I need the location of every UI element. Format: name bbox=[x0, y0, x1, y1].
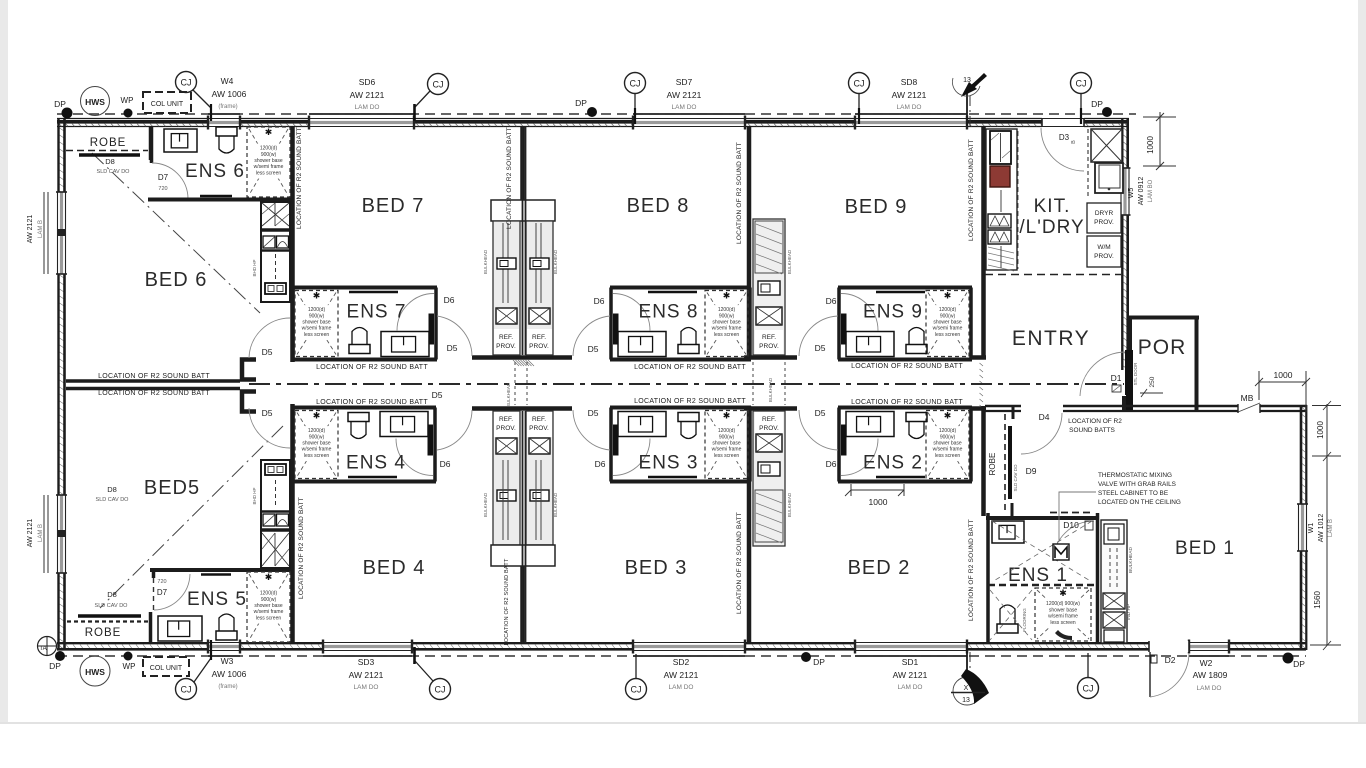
svg-text:250: 250 bbox=[1149, 376, 1156, 387]
svg-text:less screen: less screen bbox=[935, 332, 961, 338]
svg-text:REF.: REF. bbox=[499, 416, 513, 423]
svg-text:PROV.: PROV. bbox=[529, 425, 549, 432]
svg-text:D6: D6 bbox=[826, 459, 837, 469]
svg-text:shower base: shower base bbox=[254, 603, 283, 609]
svg-text:CJ: CJ bbox=[181, 685, 192, 695]
svg-text:D4: D4 bbox=[1039, 412, 1050, 422]
svg-text:SLD CAV DO: SLD CAV DO bbox=[1013, 464, 1018, 491]
svg-text:B: B bbox=[1071, 140, 1077, 144]
svg-text:D5: D5 bbox=[588, 408, 599, 418]
svg-text:PROV.: PROV. bbox=[759, 425, 779, 432]
svg-text:WP: WP bbox=[123, 662, 136, 671]
svg-text:SLD CAV DO: SLD CAV DO bbox=[95, 603, 129, 609]
svg-text:AW 2121: AW 2121 bbox=[27, 215, 34, 244]
svg-text:SD3: SD3 bbox=[358, 657, 375, 667]
svg-text:LOCATION OF R2 SOUND BATT: LOCATION OF R2 SOUND BATT bbox=[851, 363, 963, 370]
svg-text:D7: D7 bbox=[157, 588, 168, 597]
svg-text:MB: MB bbox=[1241, 393, 1254, 403]
svg-text:LAM DO: LAM DO bbox=[898, 684, 923, 691]
svg-text:LOCATION OF R2 SOUND BATT: LOCATION OF R2 SOUND BATT bbox=[968, 519, 975, 621]
svg-text:900(w): 900(w) bbox=[719, 313, 735, 319]
svg-text:less screen: less screen bbox=[714, 453, 740, 459]
svg-text:PROV.: PROV. bbox=[759, 343, 779, 350]
svg-text:REF.: REF. bbox=[499, 334, 513, 341]
svg-text:REF.: REF. bbox=[532, 416, 546, 423]
svg-text:ENS 8: ENS 8 bbox=[639, 302, 699, 323]
svg-text:shower base: shower base bbox=[712, 441, 741, 447]
svg-text:HWS: HWS bbox=[85, 97, 105, 107]
svg-text:WP: WP bbox=[121, 96, 134, 105]
svg-text:W3: W3 bbox=[221, 656, 234, 666]
svg-text:LOCATION OF R2 SOUND BATT: LOCATION OF R2 SOUND BATT bbox=[316, 399, 428, 406]
svg-text:✱: ✱ bbox=[313, 291, 321, 301]
svg-text:D8: D8 bbox=[105, 157, 115, 166]
svg-text:DP: DP bbox=[1091, 99, 1103, 109]
svg-text:w/semi frame: w/semi frame bbox=[302, 447, 332, 453]
svg-text:TA: TA bbox=[39, 646, 46, 652]
svg-text:AW 0912: AW 0912 bbox=[1138, 177, 1145, 206]
svg-text:BED5: BED5 bbox=[144, 477, 200, 499]
svg-text:ENS 2: ENS 2 bbox=[863, 453, 923, 474]
svg-text:LAM B: LAM B bbox=[1328, 519, 1334, 537]
svg-text:BED 1: BED 1 bbox=[1175, 538, 1235, 559]
svg-text:POR: POR bbox=[1138, 336, 1187, 359]
svg-text:KIT.: KIT. bbox=[1034, 196, 1071, 217]
svg-text:LAM B: LAM B bbox=[38, 220, 44, 238]
svg-text:less screen: less screen bbox=[256, 615, 282, 621]
svg-text:900(w): 900(w) bbox=[309, 313, 325, 319]
svg-text:✱: ✱ bbox=[944, 291, 952, 301]
svg-text:CJ: CJ bbox=[1083, 684, 1094, 694]
svg-text:BULKHEAD: BULKHEAD bbox=[553, 492, 558, 517]
svg-text:CJ: CJ bbox=[1076, 79, 1087, 89]
svg-text:W1: W1 bbox=[1308, 523, 1315, 534]
svg-text:AW 2121: AW 2121 bbox=[349, 670, 384, 680]
svg-text:AW 1006: AW 1006 bbox=[212, 669, 247, 679]
svg-text:1200(d) 900(w): 1200(d) 900(w) bbox=[1046, 601, 1080, 607]
svg-text:LOCATION OF R2 SOUND BATT: LOCATION OF R2 SOUND BATT bbox=[98, 390, 210, 397]
svg-text:LOCATION OF R2 SOUND BATT: LOCATION OF R2 SOUND BATT bbox=[736, 512, 743, 614]
svg-text:✱: ✱ bbox=[723, 411, 731, 421]
svg-text:720: 720 bbox=[158, 186, 167, 192]
svg-text:LAM DO: LAM DO bbox=[672, 104, 697, 111]
svg-text:LOCATION OF R2 SOUND BATT: LOCATION OF R2 SOUND BATT bbox=[296, 127, 303, 229]
svg-text:D3: D3 bbox=[1059, 133, 1070, 142]
svg-text:D5: D5 bbox=[432, 390, 443, 400]
svg-text:BHD HP: BHD HP bbox=[252, 487, 257, 504]
svg-text:BULKHEAD: BULKHEAD bbox=[787, 492, 792, 517]
svg-text:CJ: CJ bbox=[854, 79, 865, 89]
svg-text:w/semi frame: w/semi frame bbox=[254, 164, 284, 170]
svg-text:720: 720 bbox=[157, 579, 166, 585]
svg-text:AW 1809: AW 1809 bbox=[1193, 670, 1228, 680]
svg-text:LAM DO: LAM DO bbox=[669, 684, 694, 691]
svg-text:REF.: REF. bbox=[762, 416, 776, 423]
svg-text:FLOORING: FLOORING bbox=[1022, 608, 1027, 632]
svg-text:BED 8: BED 8 bbox=[627, 195, 690, 217]
svg-text:PROV.: PROV. bbox=[1094, 219, 1114, 226]
svg-text:REF.: REF. bbox=[532, 334, 546, 341]
svg-text:ROBE: ROBE bbox=[90, 137, 127, 149]
svg-text:ENS 5: ENS 5 bbox=[187, 589, 247, 610]
svg-text:LOCATION OF R2 SOUND BATT: LOCATION OF R2 SOUND BATT bbox=[504, 558, 510, 645]
svg-text:BULKHEAD: BULKHEAD bbox=[483, 249, 488, 274]
svg-text:COL UNIT: COL UNIT bbox=[151, 101, 184, 108]
svg-text:VALVE WITH GRAB RAILS: VALVE WITH GRAB RAILS bbox=[1098, 481, 1176, 488]
svg-text:shower base: shower base bbox=[302, 320, 331, 326]
svg-text:COL UNIT: COL UNIT bbox=[150, 665, 183, 672]
svg-text:D9: D9 bbox=[1026, 466, 1037, 476]
svg-text:BULKHEAD: BULKHEAD bbox=[553, 249, 558, 274]
svg-text:SD6: SD6 bbox=[359, 77, 376, 87]
svg-text:900(w): 900(w) bbox=[940, 313, 956, 319]
svg-text:less screen: less screen bbox=[935, 453, 961, 459]
svg-text:SLD CAV DO: SLD CAV DO bbox=[97, 169, 131, 175]
svg-text:AW 2121: AW 2121 bbox=[27, 519, 34, 548]
svg-text:LOCATION OF R2 SOUND BATT: LOCATION OF R2 SOUND BATT bbox=[634, 364, 746, 371]
svg-text:W4: W4 bbox=[221, 76, 234, 86]
svg-text:D1: D1 bbox=[1111, 373, 1122, 383]
svg-text:✱: ✱ bbox=[723, 291, 731, 301]
svg-text:1000: 1000 bbox=[1316, 421, 1325, 439]
svg-text:D6: D6 bbox=[444, 295, 455, 305]
svg-text:LOCATION OF R2 SOUND BATT: LOCATION OF R2 SOUND BATT bbox=[736, 142, 743, 244]
svg-text:BULKHEAD: BULKHEAD bbox=[1128, 547, 1134, 573]
svg-text:✱: ✱ bbox=[1059, 588, 1067, 598]
svg-text:D6: D6 bbox=[826, 296, 837, 306]
svg-text:AW 2121: AW 2121 bbox=[350, 90, 385, 100]
svg-text:✱: ✱ bbox=[944, 411, 952, 421]
svg-text:CJ: CJ bbox=[435, 685, 446, 695]
svg-text:less screen: less screen bbox=[1050, 620, 1076, 626]
svg-text:W2: W2 bbox=[1200, 658, 1213, 668]
svg-text:D6: D6 bbox=[595, 459, 606, 469]
svg-text:✱: ✱ bbox=[313, 411, 321, 421]
svg-text:D5: D5 bbox=[588, 344, 599, 354]
svg-text:PROV.: PROV. bbox=[529, 343, 549, 350]
svg-text:DRYR: DRYR bbox=[1095, 210, 1114, 217]
svg-text:w/semi frame: w/semi frame bbox=[933, 326, 963, 332]
svg-text:1560: 1560 bbox=[1313, 591, 1322, 609]
svg-text:BED 6: BED 6 bbox=[145, 269, 208, 291]
svg-text:1000: 1000 bbox=[1274, 370, 1293, 380]
svg-text:1000: 1000 bbox=[1146, 136, 1155, 154]
svg-text:ENS 6: ENS 6 bbox=[185, 161, 245, 182]
svg-text:D5: D5 bbox=[815, 408, 826, 418]
svg-text:13: 13 bbox=[963, 77, 971, 84]
svg-text:AW 2121: AW 2121 bbox=[893, 670, 928, 680]
svg-text:D5: D5 bbox=[815, 343, 826, 353]
svg-text:D10: D10 bbox=[1063, 520, 1079, 530]
svg-text:BED 7: BED 7 bbox=[362, 195, 425, 217]
svg-text:LAM B: LAM B bbox=[38, 524, 44, 542]
svg-text:w/semi frame: w/semi frame bbox=[1048, 614, 1078, 620]
svg-text:LOCATION OF R2 SOUND BATT: LOCATION OF R2 SOUND BATT bbox=[851, 399, 963, 406]
svg-text:w/semi frame: w/semi frame bbox=[712, 447, 742, 453]
svg-text:CJ: CJ bbox=[630, 79, 641, 89]
svg-text:900(w): 900(w) bbox=[261, 152, 277, 158]
svg-text:w/semi frame: w/semi frame bbox=[302, 326, 332, 332]
svg-text:1000: 1000 bbox=[869, 497, 888, 507]
svg-text:D2: D2 bbox=[1165, 655, 1176, 665]
svg-text:✱: ✱ bbox=[265, 572, 273, 582]
svg-text:STL DOOR: STL DOOR bbox=[1133, 362, 1138, 386]
svg-text:ENS 7: ENS 7 bbox=[347, 302, 407, 323]
svg-text:ROBE: ROBE bbox=[85, 627, 122, 639]
svg-text:DP: DP bbox=[1293, 659, 1305, 669]
svg-text:SD1: SD1 bbox=[902, 657, 919, 667]
svg-text:1200(d): 1200(d) bbox=[939, 428, 957, 434]
svg-text:IND HP: IND HP bbox=[1126, 604, 1132, 620]
svg-text:BULKHEAD: BULKHEAD bbox=[483, 492, 488, 517]
svg-text:LOCATION OF R2 SOUND BATT: LOCATION OF R2 SOUND BATT bbox=[968, 139, 975, 241]
svg-text:W5: W5 bbox=[1128, 188, 1135, 199]
svg-text:REF.: REF. bbox=[762, 334, 776, 341]
svg-text:shower base: shower base bbox=[933, 441, 962, 447]
svg-text:D5: D5 bbox=[262, 347, 273, 357]
svg-text:AW 1012: AW 1012 bbox=[1318, 514, 1325, 543]
svg-text:(frame): (frame) bbox=[218, 104, 237, 110]
svg-text:✱: ✱ bbox=[265, 127, 273, 137]
svg-text:13: 13 bbox=[962, 697, 970, 704]
svg-text:D6: D6 bbox=[594, 296, 605, 306]
svg-text:PROV.: PROV. bbox=[496, 343, 516, 350]
svg-text:less screen: less screen bbox=[714, 332, 740, 338]
svg-text:CJ: CJ bbox=[433, 80, 444, 90]
svg-text:ENS 3: ENS 3 bbox=[639, 453, 699, 474]
svg-text:less screen: less screen bbox=[304, 453, 330, 459]
svg-text:CJ: CJ bbox=[631, 685, 642, 695]
svg-text:SD8: SD8 bbox=[901, 77, 918, 87]
svg-text:SOUND BATTS: SOUND BATTS bbox=[1069, 427, 1115, 434]
svg-text:LOCATION OF R2 SOUND BATT: LOCATION OF R2 SOUND BATT bbox=[634, 398, 746, 405]
svg-text:PROV.: PROV. bbox=[496, 425, 516, 432]
svg-text:AW 1006: AW 1006 bbox=[212, 89, 247, 99]
svg-text:STEEL CABINET TO BE: STEEL CABINET TO BE bbox=[1098, 490, 1168, 497]
svg-text:D8: D8 bbox=[107, 590, 117, 599]
svg-text:HWS: HWS bbox=[85, 667, 105, 677]
svg-text:LAM DO: LAM DO bbox=[355, 104, 380, 111]
svg-text:LOCATED ON THE CEILING: LOCATED ON THE CEILING bbox=[1098, 499, 1181, 506]
svg-text:shower base: shower base bbox=[254, 158, 283, 164]
svg-text:BULKHEAD: BULKHEAD bbox=[506, 382, 511, 407]
svg-text:ENS 9: ENS 9 bbox=[863, 302, 923, 323]
svg-text:DP: DP bbox=[813, 657, 825, 667]
svg-text:BED 9: BED 9 bbox=[845, 196, 908, 218]
svg-text:BED 3: BED 3 bbox=[625, 557, 688, 579]
svg-text:LAM BO: LAM BO bbox=[1148, 179, 1154, 202]
svg-text:BED 4: BED 4 bbox=[363, 557, 426, 579]
svg-text:1200(d): 1200(d) bbox=[718, 307, 736, 313]
svg-text:1200(d): 1200(d) bbox=[308, 307, 326, 313]
svg-text:DP: DP bbox=[49, 661, 61, 671]
svg-text:shower base: shower base bbox=[712, 320, 741, 326]
svg-text:ENS 1: ENS 1 bbox=[1008, 565, 1068, 586]
svg-text:AW 2121: AW 2121 bbox=[664, 670, 699, 680]
svg-text:/L'DRY: /L'DRY bbox=[1019, 217, 1084, 238]
svg-text:LAM DO: LAM DO bbox=[1197, 685, 1222, 692]
svg-text:LOCATION OF R2 SOUND BATT: LOCATION OF R2 SOUND BATT bbox=[98, 373, 210, 380]
svg-text:SD7: SD7 bbox=[676, 77, 693, 87]
svg-text:AW 2121: AW 2121 bbox=[667, 90, 702, 100]
svg-text:900(w): 900(w) bbox=[719, 434, 735, 440]
svg-text:DP: DP bbox=[54, 99, 66, 109]
svg-text:LOCATION OF R2 SOUND BATT: LOCATION OF R2 SOUND BATT bbox=[506, 127, 513, 229]
svg-text:PROV.: PROV. bbox=[1094, 253, 1114, 260]
svg-text:D6: D6 bbox=[440, 459, 451, 469]
svg-text:w/semi frame: w/semi frame bbox=[254, 609, 284, 615]
svg-text:THERMOSTATIC MIXING: THERMOSTATIC MIXING bbox=[1098, 472, 1172, 479]
svg-text:CJ: CJ bbox=[181, 78, 192, 88]
svg-text:1200(d): 1200(d) bbox=[718, 428, 736, 434]
svg-text:900(w): 900(w) bbox=[940, 434, 956, 440]
svg-text:LAM DO: LAM DO bbox=[897, 104, 922, 111]
svg-text:LOCATION OF R2 SOUND BATT: LOCATION OF R2 SOUND BATT bbox=[298, 497, 305, 599]
svg-text:shower base: shower base bbox=[302, 441, 331, 447]
svg-text:shower base: shower base bbox=[1049, 607, 1078, 613]
svg-text:less screen: less screen bbox=[304, 332, 330, 338]
svg-text:1200(d): 1200(d) bbox=[260, 591, 278, 597]
svg-text:SLD CAV DO: SLD CAV DO bbox=[96, 497, 130, 503]
svg-text:w/semi frame: w/semi frame bbox=[933, 447, 963, 453]
svg-text:w/semi frame: w/semi frame bbox=[712, 326, 742, 332]
svg-text:900(w): 900(w) bbox=[309, 434, 325, 440]
svg-text:W/M: W/M bbox=[1097, 244, 1110, 251]
svg-text:ENS 4: ENS 4 bbox=[346, 453, 406, 474]
svg-text:ENTRY: ENTRY bbox=[1012, 327, 1090, 350]
svg-text:BED 2: BED 2 bbox=[848, 557, 911, 579]
svg-text:(frame): (frame) bbox=[218, 684, 237, 690]
svg-text:DP: DP bbox=[575, 98, 587, 108]
svg-text:LOCATION OF R2: LOCATION OF R2 bbox=[1068, 418, 1122, 425]
svg-text:D8: D8 bbox=[107, 485, 117, 494]
svg-text:less screen: less screen bbox=[256, 170, 282, 176]
svg-text:900(w): 900(w) bbox=[261, 597, 277, 603]
svg-text:X: X bbox=[964, 685, 969, 692]
svg-text:D5: D5 bbox=[262, 408, 273, 418]
svg-text:1200(d): 1200(d) bbox=[939, 307, 957, 313]
svg-text:SD2: SD2 bbox=[673, 657, 690, 667]
svg-text:shower base: shower base bbox=[933, 320, 962, 326]
svg-text:LAM DO: LAM DO bbox=[354, 684, 379, 691]
svg-text:AW 2121: AW 2121 bbox=[892, 90, 927, 100]
svg-text:1200(d): 1200(d) bbox=[260, 146, 278, 152]
svg-text:ROBE: ROBE bbox=[988, 453, 997, 476]
svg-text:BULKHEAD: BULKHEAD bbox=[787, 249, 792, 274]
svg-text:D5: D5 bbox=[447, 343, 458, 353]
svg-text:D7: D7 bbox=[158, 173, 169, 182]
svg-text:BULKHEAD: BULKHEAD bbox=[768, 377, 773, 402]
svg-text:1200(d): 1200(d) bbox=[308, 428, 326, 434]
svg-text:LOCATION OF R2 SOUND BATT: LOCATION OF R2 SOUND BATT bbox=[316, 364, 428, 371]
svg-text:BHD HP: BHD HP bbox=[252, 259, 257, 276]
